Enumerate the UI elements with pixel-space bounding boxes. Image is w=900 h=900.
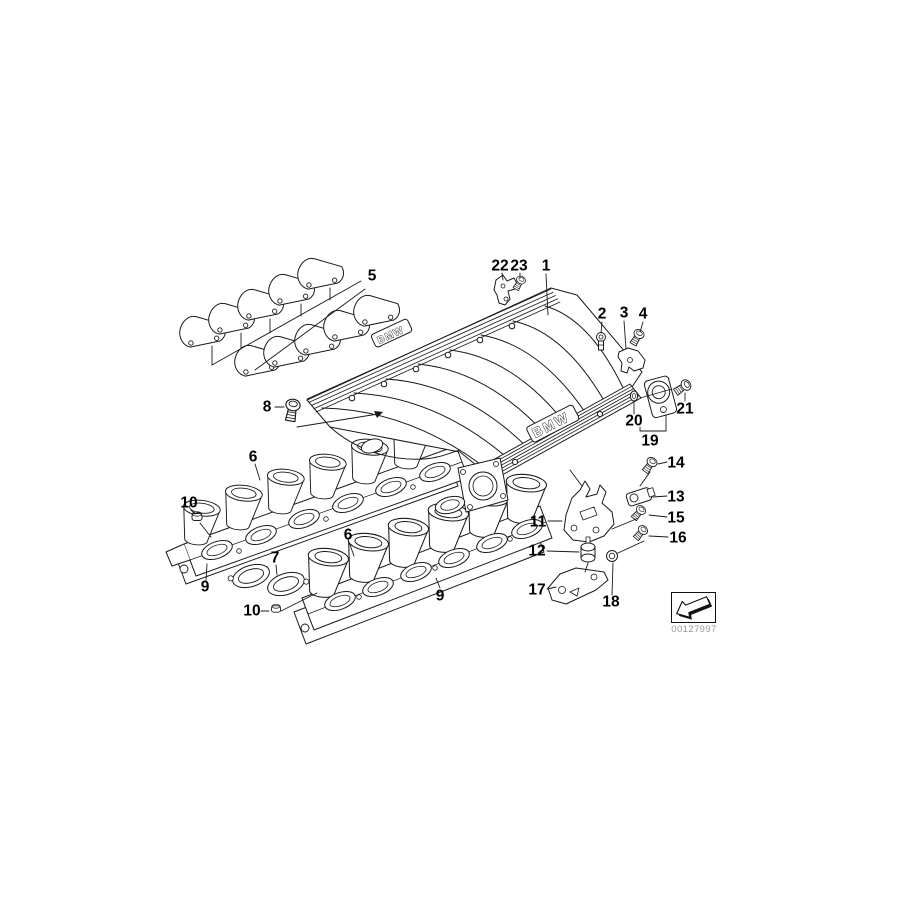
diagram-stamp-code: 00127997 — [662, 624, 726, 635]
bolt-part-8 — [283, 398, 301, 422]
part-callout-3[interactable]: 3 — [620, 305, 629, 321]
part-callout-9b[interactable]: 9 — [436, 588, 445, 604]
part-callout-2[interactable]: 2 — [598, 306, 607, 322]
nut-part-10-lower — [272, 604, 281, 612]
part-callout-18[interactable]: 18 — [602, 594, 619, 610]
diagram-stamp-box — [671, 592, 716, 623]
part-callout-1[interactable]: 1 — [542, 258, 551, 274]
part-callout-13[interactable]: 13 — [667, 489, 684, 505]
part-callout-6a[interactable]: 6 — [249, 449, 258, 465]
seal-part-20 — [630, 391, 637, 401]
bolt-part-21 — [672, 378, 692, 397]
part-callout-17[interactable]: 17 — [528, 582, 545, 598]
part-callout-14[interactable]: 14 — [667, 455, 684, 471]
part-callout-11[interactable]: 11 — [530, 514, 546, 530]
part-callout-22[interactable]: 22 — [491, 258, 508, 274]
part-callout-8[interactable]: 8 — [263, 399, 272, 415]
part-callout-4[interactable]: 4 — [639, 306, 648, 322]
ring-gaskets-pair — [226, 560, 310, 600]
exploded-diagram-canvas: BMW BMW — [0, 0, 900, 900]
part-callout-10b[interactable]: 10 — [243, 603, 260, 619]
corner-arrow-icon — [672, 593, 715, 622]
parts-diagram-page: BMW BMW — [0, 0, 900, 900]
part-callout-9a[interactable]: 9 — [201, 579, 210, 595]
part-callout-6b[interactable]: 6 — [344, 527, 353, 543]
part-callout-19[interactable]: 19 — [641, 433, 658, 449]
bracket-part-17 — [548, 568, 608, 604]
part-callout-7[interactable]: 7 — [271, 550, 280, 566]
bracket-part-11 — [564, 481, 614, 542]
bolt-part-16 — [632, 524, 649, 542]
sensor-part-13 — [625, 486, 656, 507]
part-callout-12[interactable]: 12 — [528, 543, 545, 559]
part-callout-10a[interactable]: 10 — [180, 495, 197, 511]
bracket-part-22 — [494, 275, 518, 305]
part-callout-15[interactable]: 15 — [667, 510, 684, 526]
actuator-part-19 — [643, 375, 677, 418]
part-callout-21[interactable]: 21 — [676, 401, 693, 417]
part-callout-23[interactable]: 23 — [510, 258, 527, 274]
bolt-part-15 — [630, 504, 647, 522]
bracket-part-3 — [618, 348, 645, 373]
nut-part-18 — [607, 551, 618, 562]
part-callout-5[interactable]: 5 — [368, 268, 377, 284]
bolt-part-4 — [628, 328, 645, 347]
part-callout-16[interactable]: 16 — [669, 530, 686, 546]
part-callout-20[interactable]: 20 — [625, 413, 642, 429]
